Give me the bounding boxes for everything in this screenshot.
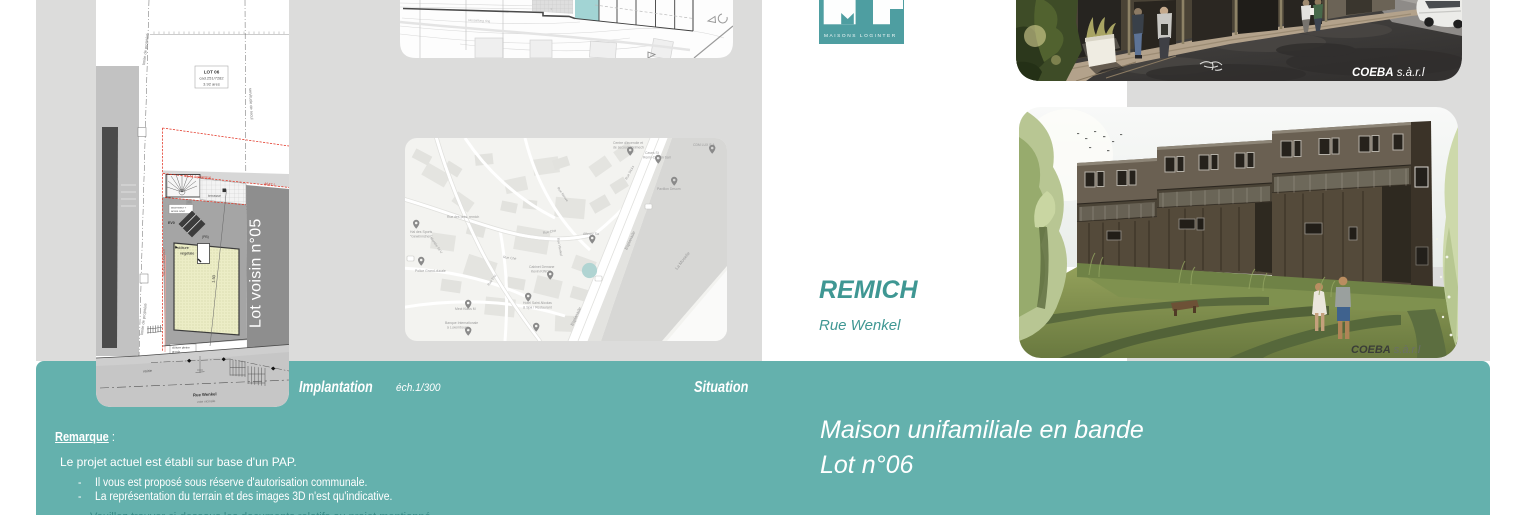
svg-text:COEBA s.à.r.l: COEBA s.à.r.l bbox=[1352, 67, 1425, 79]
svg-text:EV0: EV0 bbox=[168, 221, 175, 225]
svg-text:Lot voisin n°05: Lot voisin n°05 bbox=[248, 218, 265, 328]
svg-text:COEBA s.à.r.l: COEBA s.à.r.l bbox=[1351, 344, 1421, 356]
svg-text:cad.251/7282: cad.251/7282 bbox=[199, 76, 224, 81]
svg-text:clôture: clôture bbox=[178, 246, 189, 250]
svg-text:& Spa / Restaurant: & Spa / Restaurant bbox=[523, 306, 552, 310]
svg-text:MAISONS LOGINTER: MAISONS LOGINTER bbox=[824, 33, 897, 39]
svg-text:Mect Klaus M: Mect Klaus M bbox=[455, 307, 476, 311]
svg-text:Caves St: Caves St bbox=[645, 151, 659, 155]
svg-text:végétale: végétale bbox=[180, 252, 194, 256]
svg-text:Hal des Sports: Hal des Sports bbox=[410, 230, 433, 234]
svg-text:Centre d'incendie et: Centre d'incendie et bbox=[613, 141, 643, 145]
svg-text:3.92 ares: 3.92 ares bbox=[203, 82, 220, 87]
svg-text:accès s/sol: accès s/sol bbox=[171, 209, 185, 213]
svg-text:1.50: 1.50 bbox=[211, 274, 217, 283]
svg-text:terrasse: terrasse bbox=[208, 194, 221, 198]
svg-text:Police Grand-ducale: Police Grand-ducale bbox=[415, 269, 446, 273]
svg-text:46.41 l sh02316: 46.41 l sh02316 bbox=[162, 249, 166, 276]
svg-text:Banque Internationale: Banque Internationale bbox=[445, 321, 478, 325]
svg-text:Hotel Saint-Nicolas: Hotel Saint-Nicolas bbox=[523, 301, 552, 305]
svg-text:Pavillon Desom: Pavillon Desom bbox=[657, 187, 681, 191]
svg-text:voirie: voirie bbox=[143, 369, 152, 374]
svg-text:Rue des prés, remich: Rue des prés, remich bbox=[447, 215, 479, 219]
svg-text:LOT 06: LOT 06 bbox=[204, 70, 220, 75]
svg-text:(PB): (PB) bbox=[202, 235, 209, 239]
svg-text:Cabinet Demane: Cabinet Demane bbox=[529, 265, 555, 269]
